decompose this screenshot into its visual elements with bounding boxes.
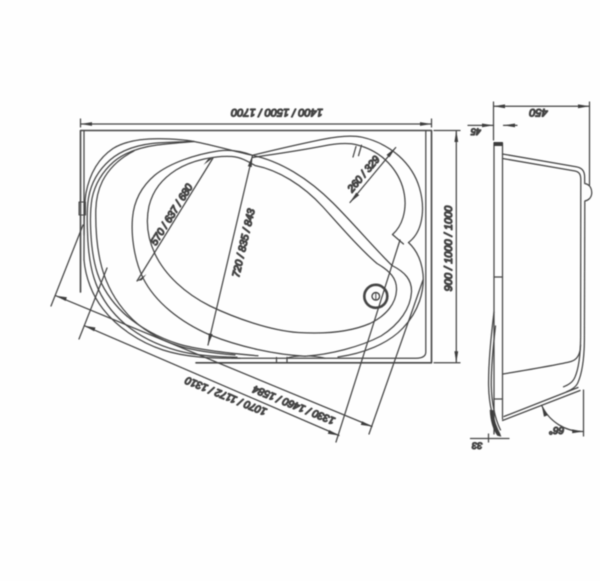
svg-text:66°: 66° [549, 424, 564, 435]
svg-text:720 / 835 / 843: 720 / 835 / 843 [230, 207, 257, 278]
svg-text:260 / 329: 260 / 329 [345, 154, 383, 196]
svg-text:900 / 1000 / 1000: 900 / 1000 / 1000 [443, 205, 455, 292]
svg-text:450: 450 [528, 106, 547, 118]
svg-text:33: 33 [471, 439, 482, 450]
svg-text:45: 45 [470, 126, 481, 136]
svg-text:1400 / 1500 / 1700: 1400 / 1500 / 1700 [230, 106, 323, 118]
